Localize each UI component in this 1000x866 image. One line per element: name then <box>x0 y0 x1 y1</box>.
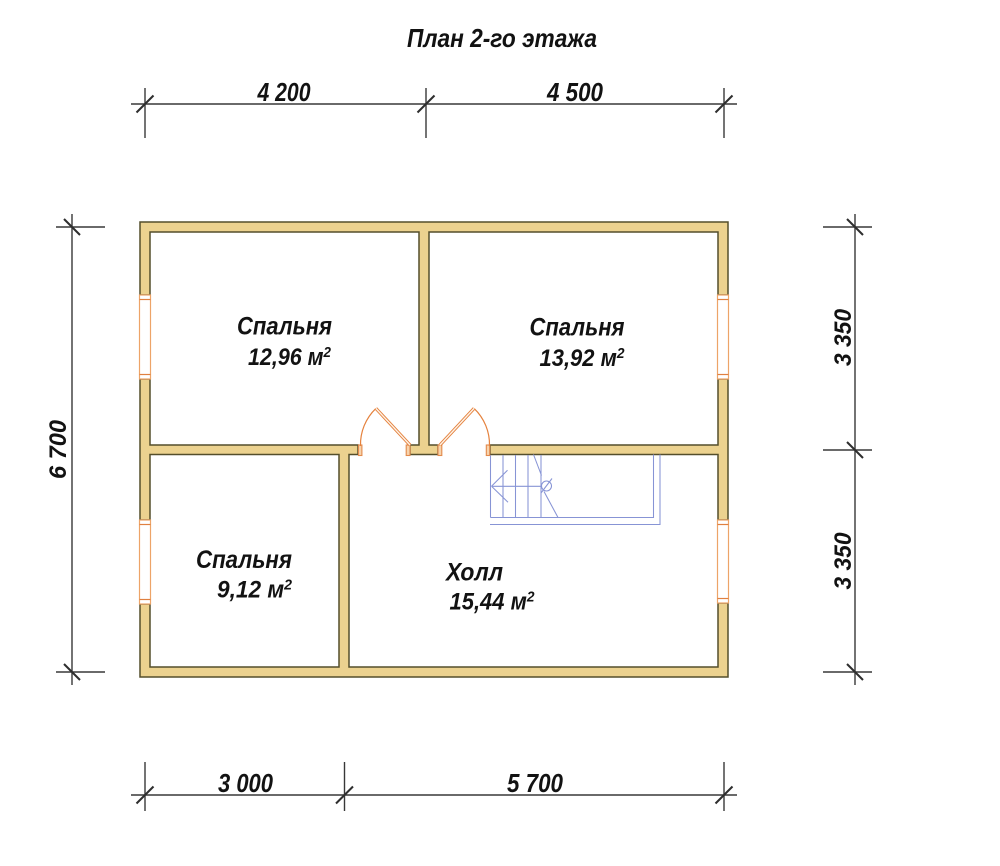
svg-text:13,92 м2: 13,92 м2 <box>540 345 626 372</box>
svg-text:15,44 м2: 15,44 м2 <box>450 588 536 615</box>
svg-text:12,96 м2: 12,96 м2 <box>248 344 332 371</box>
svg-text:Спальня: Спальня <box>237 313 332 341</box>
svg-text:План 2-го этажа: План 2-го этажа <box>407 23 597 53</box>
svg-text:6 700: 6 700 <box>45 419 72 479</box>
svg-text:3 350: 3 350 <box>830 308 857 366</box>
svg-text:Спальня: Спальня <box>196 546 292 574</box>
svg-text:4 200: 4 200 <box>257 77 311 107</box>
svg-text:9,12 м2: 9,12 м2 <box>217 577 293 604</box>
svg-text:3 000: 3 000 <box>218 768 273 798</box>
svg-text:5 700: 5 700 <box>507 768 563 798</box>
svg-text:3 350: 3 350 <box>830 532 857 590</box>
svg-text:Холл: Холл <box>444 559 503 587</box>
svg-text:4 500: 4 500 <box>546 77 603 107</box>
svg-text:Спальня: Спальня <box>530 314 625 342</box>
